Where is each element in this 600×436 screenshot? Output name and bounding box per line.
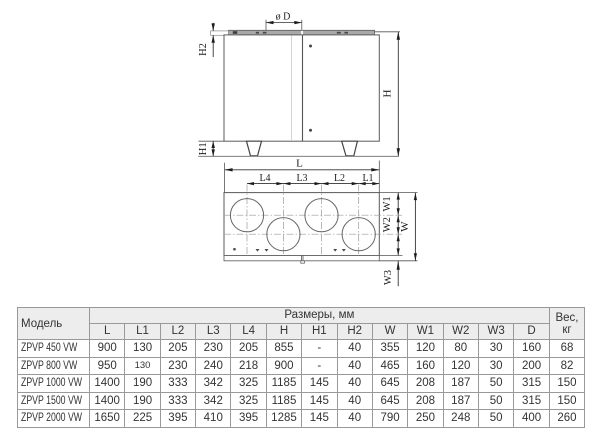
svg-text:W3: W3 [383,270,394,285]
svg-text:L3: L3 [296,173,307,184]
svg-text:L4: L4 [259,173,270,184]
svg-text:W: W [399,221,411,232]
svg-text:L2: L2 [334,173,345,184]
svg-text:W1: W1 [382,196,393,211]
svg-text:ø D: ø D [276,11,291,22]
svg-text:H1: H1 [198,142,209,155]
svg-text:W2: W2 [382,217,393,232]
svg-text:H2: H2 [198,43,209,56]
svg-text:H: H [382,89,394,97]
svg-text:L: L [296,158,303,170]
svg-text:L1: L1 [362,173,373,184]
